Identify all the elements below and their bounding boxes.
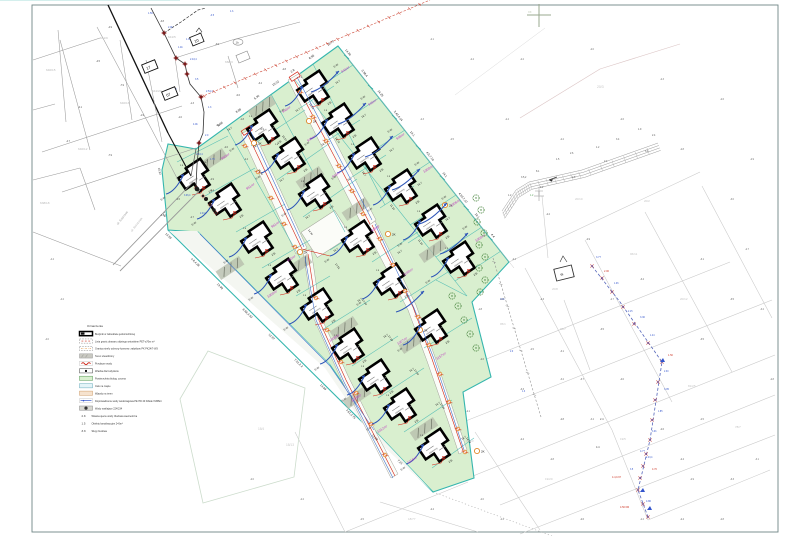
svg-text:3.30: 3.30 — [640, 316, 645, 319]
svg-text:3.0b: 3.0b — [652, 431, 657, 433]
svg-text:2.4: 2.4 — [600, 418, 604, 421]
svg-text:2K: 2K — [313, 120, 317, 124]
svg-text:95/7: 95/7 — [560, 327, 566, 331]
svg-text:81/25: 81/25 — [688, 384, 696, 388]
svg-text:2K: 2K — [258, 142, 262, 146]
svg-text:Ciek na mapie: Ciek na mapie — [95, 385, 111, 388]
svg-text:Wlasna ujecie wody zbudowa wew: Wlasna ujecie wody zbudowa wewnetrzna — [92, 415, 138, 418]
svg-text:4.0b: 4.0b — [193, 123, 198, 126]
svg-text:-3.5: -3.5 — [210, 14, 215, 17]
svg-text:3.77: 3.77 — [596, 256, 601, 259]
svg-text:Z.K: Z.K — [82, 429, 86, 433]
svg-text:2K: 2K — [304, 251, 308, 255]
svg-text:Linia granic obszaru objetego: Linia granic obszaru objetego wnioskiem … — [95, 340, 155, 343]
svg-text:4.70: 4.70 — [652, 468, 657, 471]
svg-text:XX: XX — [528, 10, 532, 14]
svg-text:95/1: 95/1 — [500, 322, 506, 326]
svg-text:18/77: 18/77 — [408, 517, 416, 521]
svg-text:1.50: 1.50 — [148, 12, 153, 15]
svg-text:18/13: 18/13 — [286, 443, 294, 447]
svg-text:641/9: 641/9 — [100, 36, 108, 40]
svg-text:1.5: 1.5 — [82, 421, 86, 425]
svg-text:Granica strefy ochrony konserw: Granica strefy ochrony konserw. zabytkow… — [95, 348, 158, 351]
svg-text:2.43,4: 2.43,4 — [646, 457, 653, 459]
svg-text:1.06: 1.06 — [614, 283, 619, 285]
svg-text:2K: 2K — [424, 329, 428, 333]
svg-text:1.75: 1.75 — [210, 158, 215, 161]
svg-text:19/5: 19/5 — [620, 437, 626, 441]
svg-text:2K: 2K — [481, 450, 485, 454]
svg-text:640/15: 640/15 — [46, 68, 56, 72]
svg-text:668/3: 668/3 — [225, 60, 233, 64]
svg-text:Wjazdy na teren: Wjazdy na teren — [95, 392, 113, 395]
svg-text:Obiekty kanalizacyjne 2=5m²: Obiekty kanalizacyjne 2=5m² — [92, 422, 123, 425]
svg-text:20/2: 20/2 — [644, 199, 650, 203]
svg-text:Teren utwardzony: Teren utwardzony — [95, 355, 115, 358]
svg-text:2.43,4: 2.43,4 — [196, 153, 203, 156]
svg-text:Powierzchnia biolog. czynna: Powierzchnia biolog. czynna — [95, 378, 126, 381]
svg-text:2.30: 2.30 — [664, 371, 669, 373]
svg-text:638/18: 638/18 — [40, 201, 50, 205]
svg-text:2K: 2K — [392, 233, 396, 237]
svg-text:4.50 6M: 4.50 6M — [620, 506, 629, 509]
svg-text:2.0b: 2.0b — [168, 26, 173, 29]
svg-text:95/13: 95/13 — [466, 439, 474, 443]
svg-text:18/4: 18/4 — [258, 427, 264, 431]
svg-text:19/20: 19/20 — [545, 477, 553, 481]
svg-text:1.4b: 1.4b — [178, 46, 183, 49]
svg-text:2.43,4: 2.43,4 — [200, 213, 207, 215]
svg-text:4.86: 4.86 — [646, 500, 651, 503]
svg-text:Wody zasilajace 224/234: Wody zasilajace 224/234 — [95, 407, 123, 410]
svg-text:2.54,4: 2.54,4 — [206, 90, 213, 93]
svg-text:Slupy budowa: Slupy budowa — [92, 430, 108, 433]
svg-text:2.K: 2.K — [82, 414, 86, 418]
svg-text:2.43,4: 2.43,4 — [190, 58, 197, 61]
svg-text:1b: 1b — [236, 41, 240, 45]
svg-text:640/12: 640/12 — [78, 147, 88, 151]
svg-text:4.77: 4.77 — [640, 450, 645, 453]
svg-text:4.4: 4.4 — [596, 446, 600, 449]
svg-text:2.15: 2.15 — [628, 311, 633, 313]
svg-text:3.05: 3.05 — [664, 388, 669, 391]
svg-text:20/10: 20/10 — [575, 197, 583, 201]
svg-text:96/11: 96/11 — [630, 252, 638, 256]
svg-text:Budynki w zabudowie jednorodzi: Budynki w zabudowie jednorodzinnej — [95, 333, 135, 336]
svg-text:20/12: 20/12 — [680, 297, 688, 301]
svg-text:1.85: 1.85 — [658, 411, 663, 413]
svg-text:3.06,4: 3.06,4 — [184, 195, 191, 197]
svg-text:78/7: 78/7 — [735, 425, 741, 429]
svg-text:641/20: 641/20 — [152, 89, 162, 93]
svg-text:640/16: 640/16 — [120, 101, 130, 105]
svg-text:20/3: 20/3 — [597, 85, 604, 89]
svg-text:Przylacze wody: Przylacze wody — [95, 363, 113, 366]
svg-text:Wiazka dla budynkow: Wiazka dla budynkow — [95, 370, 119, 373]
svg-text:2.06: 2.06 — [604, 270, 609, 273]
svg-text:20/8: 20/8 — [552, 287, 558, 291]
svg-text:Doprowadzenie wody wodociagowa: Doprowadzenie wody wodociagowa PE HD 40 … — [95, 400, 162, 403]
svg-text:Oznaczenia: Oznaczenia — [87, 324, 103, 328]
svg-text:4.4,0.97: 4.4,0.97 — [612, 476, 622, 479]
svg-text:3.5,2: 3.5,2 — [521, 176, 527, 179]
svg-text:641/5: 641/5 — [168, 35, 176, 39]
svg-text:1.50: 1.50 — [668, 354, 673, 357]
svg-text:1.44: 1.44 — [650, 335, 655, 337]
